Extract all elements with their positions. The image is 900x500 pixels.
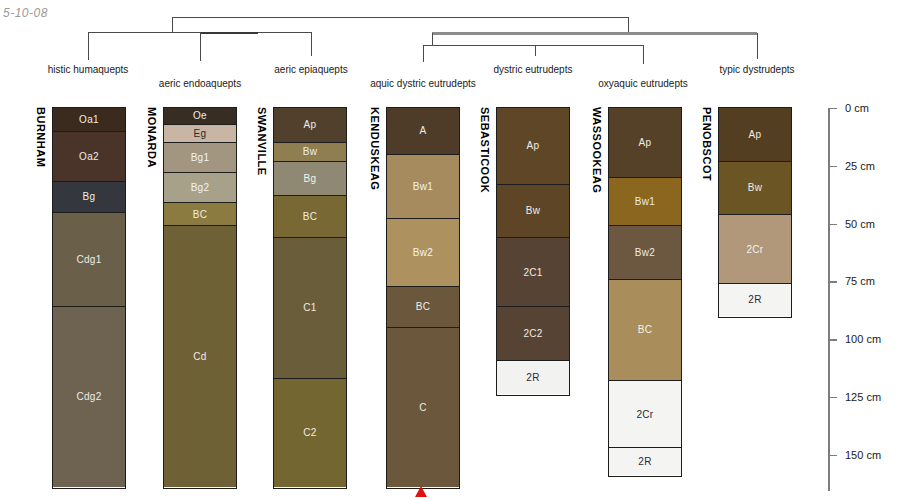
- horizon-monarda-bg2: Bg2: [164, 172, 236, 202]
- dendrogram-segment: [88, 32, 89, 60]
- series-name-kenduskeag: KENDUSKEAG: [369, 107, 381, 190]
- horizon-label: BC: [638, 324, 653, 335]
- horizon-label: C: [419, 402, 427, 413]
- horizon-label: Oa2: [79, 151, 99, 162]
- dendrogram-segment: [432, 33, 433, 45]
- date-stamp: 5-10-08: [3, 6, 48, 20]
- horizon-label: 2C2: [523, 328, 542, 339]
- soil-profile-dendrogram-figure: 5-10-08 histic humaqueptsaeric endoaquep…: [0, 0, 900, 500]
- horizon-kenduskeag-bc: BC: [387, 286, 459, 328]
- depth-tick-label: 50 cm: [845, 218, 875, 230]
- profile-column-burnham: Oa1Oa2BgCdg1Cdg2: [52, 107, 126, 489]
- horizon-label: Eg: [194, 128, 207, 139]
- depth-tick: [828, 339, 837, 340]
- depth-tick: [828, 281, 837, 282]
- horizon-monarda-eg: Eg: [164, 124, 236, 142]
- horizon-label: 2R: [638, 456, 651, 467]
- horizon-kenduskeag-a: A: [387, 108, 459, 154]
- horizon-sebasticook-2c1: 2C1: [497, 237, 569, 306]
- depth-tick: [828, 397, 837, 398]
- horizon-wassookeag-ap: Ap: [609, 108, 681, 177]
- horizon-label: Bw1: [413, 181, 433, 192]
- taxon-label: histic humaquepts: [48, 64, 129, 75]
- horizon-swanville-c2: C2: [274, 378, 346, 487]
- taxon-label: typic dystrudepts: [719, 64, 794, 75]
- dendrogram-segment: [757, 33, 758, 59]
- horizon-label: Bw: [526, 205, 541, 216]
- horizon-penobscot-2r: 2R: [719, 283, 791, 315]
- dendrogram-segment: [200, 32, 258, 34]
- series-name-swanville: SWANVILLE: [256, 107, 268, 176]
- horizon-label: BC: [303, 211, 318, 222]
- dendrogram-segment: [423, 45, 424, 62]
- dendrogram-segment: [200, 32, 201, 61]
- horizon-swanville-bw: Bw: [274, 142, 346, 160]
- profile-column-sebasticook: ApBw2C12C22R: [496, 107, 570, 397]
- series-name-sebasticook: SEBASTICOOK: [479, 107, 491, 193]
- horizon-sebasticook-ap: Ap: [497, 108, 569, 184]
- horizon-burnham-oa2: Oa2: [53, 131, 125, 182]
- dendrogram-segment: [628, 17, 629, 33]
- taxon-label: aquic dystric eutrudepts: [370, 78, 476, 89]
- depth-tick: [828, 224, 837, 225]
- dendrogram-segment: [643, 45, 644, 64]
- horizon-label: Bw1: [635, 196, 655, 207]
- depth-tick: [828, 166, 837, 167]
- horizon-label: Oe: [193, 110, 207, 121]
- series-name-penobscot: PENOBSCOT: [701, 107, 713, 181]
- horizon-label: Ap: [749, 129, 762, 140]
- dendrogram-segment: [311, 32, 312, 56]
- horizon-sebasticook-2r: 2R: [497, 360, 569, 395]
- horizon-label: Cdg2: [76, 391, 101, 402]
- profile-column-swanville: ApBwBgBCC1C2: [273, 107, 347, 489]
- horizon-monarda-bc: BC: [164, 202, 236, 225]
- horizon-label: Bg2: [191, 182, 210, 193]
- horizon-label: A: [420, 125, 427, 136]
- horizon-wassookeag-bw2: Bw2: [609, 225, 681, 278]
- depth-tick-label: 0 cm: [845, 102, 869, 114]
- horizon-label: Ap: [639, 137, 652, 148]
- horizon-label: Ap: [304, 119, 317, 130]
- horizon-label: BC: [193, 209, 208, 220]
- depth-tick-label: 75 cm: [845, 275, 875, 287]
- horizon-swanville-bc: BC: [274, 195, 346, 237]
- depth-tick-label: 125 cm: [845, 391, 881, 403]
- horizon-label: Bg: [304, 173, 317, 184]
- dendrogram-segment: [535, 45, 536, 56]
- taxon-label: oxyaquic eutrudepts: [598, 78, 688, 89]
- horizon-label: 2R: [748, 294, 761, 305]
- horizon-label: BC: [416, 301, 431, 312]
- taxon-label: aeric endoaquepts: [159, 78, 241, 89]
- horizon-wassookeag-bc: BC: [609, 279, 681, 381]
- horizon-label: Bw2: [413, 247, 433, 258]
- horizon-burnham-cdg2: Cdg2: [53, 306, 125, 486]
- horizon-label: 2Cr: [636, 409, 653, 420]
- surface-marker-icon: [415, 486, 427, 497]
- horizon-label: Bg1: [191, 152, 210, 163]
- horizon-label: Oa1: [79, 114, 99, 125]
- horizon-wassookeag-2r: 2R: [609, 447, 681, 475]
- horizon-label: Cdg1: [76, 254, 101, 265]
- depth-tick-label: 25 cm: [845, 160, 875, 172]
- horizon-label: 2C1: [523, 267, 542, 278]
- taxon-label: dystric eutrudepts: [494, 64, 573, 75]
- series-name-wassookeag: WASSOOKEAG: [591, 107, 603, 193]
- horizon-kenduskeag-bw2: Bw2: [387, 218, 459, 285]
- horizon-sebasticook-bw: Bw: [497, 184, 569, 237]
- horizon-label: C2: [303, 427, 316, 438]
- horizon-burnham-oa1: Oa1: [53, 108, 125, 131]
- dendrogram-segment: [172, 17, 628, 18]
- horizon-sebasticook-2c2: 2C2: [497, 306, 569, 359]
- profile-column-wassookeag: ApBw1Bw2BC2Cr2R: [608, 107, 682, 478]
- horizon-monarda-bg1: Bg1: [164, 142, 236, 172]
- horizon-wassookeag-bw1: Bw1: [609, 177, 681, 226]
- depth-tick: [828, 108, 837, 109]
- profile-column-penobscot: ApBw2Cr2R: [718, 107, 792, 318]
- horizon-label: Bw: [748, 182, 763, 193]
- horizon-burnham-bg: Bg: [53, 181, 125, 211]
- horizon-label: Cd: [193, 351, 206, 362]
- horizon-label: Ap: [527, 140, 540, 151]
- series-name-monarda: MONARDA: [146, 107, 158, 168]
- horizon-penobscot-bw: Bw: [719, 161, 791, 214]
- horizon-burnham-cdg1: Cdg1: [53, 212, 125, 307]
- horizon-label: 2Cr: [746, 244, 763, 255]
- taxon-label: aeric epiaquepts: [274, 64, 347, 75]
- horizon-label: C1: [303, 302, 316, 313]
- dendrogram-segment: [172, 17, 173, 32]
- depth-tick: [828, 455, 837, 456]
- profile-column-kenduskeag: ABw1Bw2BCC: [386, 107, 460, 489]
- horizon-kenduskeag-bw1: Bw1: [387, 154, 459, 219]
- horizon-label: Bg: [83, 191, 96, 202]
- horizon-kenduskeag-c: C: [387, 327, 459, 487]
- profile-column-monarda: OeEgBg1Bg2BCCd: [163, 107, 237, 489]
- horizon-label: Bw: [303, 146, 318, 157]
- dendrogram-segment: [432, 32, 757, 35]
- horizon-label: Bw2: [635, 247, 655, 258]
- horizon-swanville-c1: C1: [274, 237, 346, 378]
- horizon-penobscot-ap: Ap: [719, 108, 791, 161]
- horizon-label: 2R: [526, 372, 539, 383]
- horizon-wassookeag-2cr: 2Cr: [609, 380, 681, 447]
- depth-tick-label: 150 cm: [845, 449, 881, 461]
- horizon-penobscot-2cr: 2Cr: [719, 214, 791, 283]
- horizon-monarda-oe: Oe: [164, 108, 236, 124]
- depth-tick-label: 100 cm: [845, 333, 881, 345]
- horizon-swanville-ap: Ap: [274, 108, 346, 143]
- horizon-monarda-cd: Cd: [164, 225, 236, 486]
- dendrogram-segment: [423, 45, 643, 46]
- series-name-burnham: BURNHAM: [35, 107, 47, 167]
- horizon-swanville-bg: Bg: [274, 161, 346, 196]
